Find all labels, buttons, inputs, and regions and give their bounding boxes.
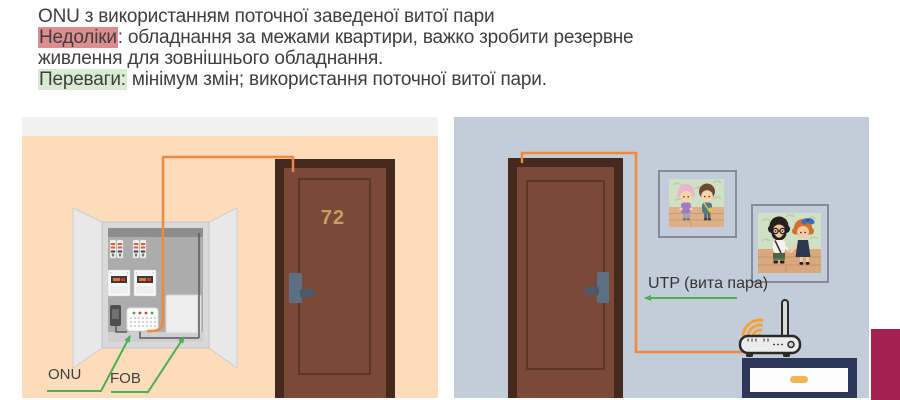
cons-highlight: Недоліки bbox=[38, 27, 118, 48]
hallway-diagram bbox=[22, 117, 438, 398]
power-device bbox=[110, 305, 121, 326]
router-body bbox=[740, 336, 800, 357]
utp-label: UTP (вита пара) bbox=[648, 275, 768, 293]
onu-device bbox=[127, 308, 158, 331]
hallway-scene: 72 bbox=[22, 117, 438, 398]
cons-line: Недоліки: обладнання за межами квартири,… bbox=[38, 27, 878, 48]
cabinet-right-door bbox=[209, 208, 237, 368]
slide-text-block: ONU з використанням поточної заведеної в… bbox=[38, 6, 878, 90]
slide-title: ONU з використанням поточної заведеної в… bbox=[38, 6, 878, 27]
electrical-cabinet bbox=[73, 208, 237, 368]
antenna bbox=[782, 300, 788, 338]
utp-cable bbox=[522, 153, 744, 352]
tv-stand-handle bbox=[790, 376, 808, 383]
cons-text: : обладнання за межами квартири, важко з… bbox=[118, 27, 634, 48]
fob-device bbox=[166, 295, 201, 333]
cabinet-left-door bbox=[73, 208, 102, 368]
pros-text: мінімум змін; використання поточної вито… bbox=[127, 69, 547, 90]
pros-highlight: Переваги: bbox=[38, 69, 127, 90]
pros-line: Переваги: мінімум змін; використання пот… bbox=[38, 69, 878, 90]
tv-stand bbox=[742, 358, 857, 398]
wifi-router bbox=[736, 294, 808, 360]
slide: ONU з використанням поточної заведеної в… bbox=[0, 0, 900, 400]
accent-block bbox=[871, 329, 900, 400]
cons-line-2: живлення для зовнішнього обладнання. bbox=[38, 48, 878, 69]
onu-label: ONU bbox=[48, 366, 81, 383]
fob-label: FOB bbox=[110, 370, 141, 387]
apartment-scene: UTP (вита пара) bbox=[454, 117, 869, 398]
